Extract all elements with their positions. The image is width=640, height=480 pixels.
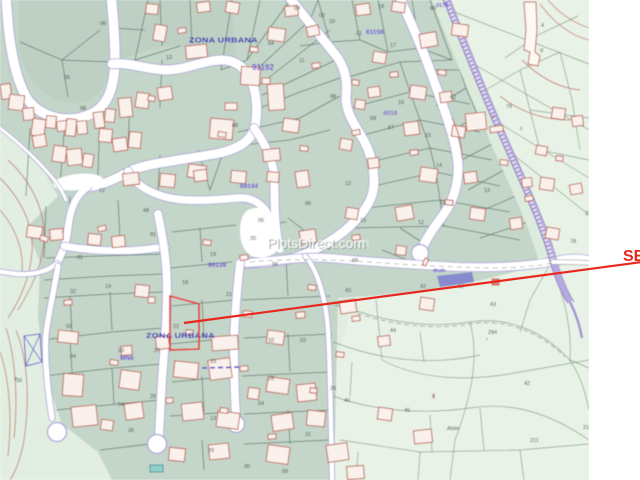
svg-text:27: 27: [154, 348, 160, 354]
svg-text:48: 48: [143, 208, 149, 214]
svg-text:19: 19: [210, 252, 216, 258]
svg-text:54: 54: [118, 402, 124, 408]
svg-text:29: 29: [330, 386, 336, 392]
svg-text:91192: 91192: [252, 63, 274, 72]
svg-text:54: 54: [258, 401, 264, 407]
svg-text:0178: 0178: [436, 3, 448, 9]
svg-text:67: 67: [388, 125, 394, 131]
svg-text:06: 06: [305, 201, 311, 207]
svg-text:18: 18: [378, 4, 384, 10]
svg-text:05: 05: [64, 75, 70, 81]
svg-text:ZONA URBANA: ZONA URBANA: [146, 332, 215, 340]
svg-text:drum: drum: [433, 268, 446, 274]
svg-text:61156: 61156: [366, 29, 384, 36]
svg-text:12: 12: [99, 188, 105, 194]
svg-text:99139: 99139: [208, 262, 226, 269]
svg-text:4: 4: [432, 395, 435, 401]
svg-text:42: 42: [524, 381, 530, 387]
svg-text:03: 03: [294, 6, 300, 12]
svg-text:08: 08: [232, 123, 238, 129]
svg-text:15: 15: [425, 133, 431, 139]
svg-text:30: 30: [244, 464, 250, 470]
svg-text:06: 06: [100, 21, 106, 27]
svg-text:44: 44: [390, 328, 396, 334]
svg-text:23: 23: [118, 348, 124, 354]
svg-text:18: 18: [182, 280, 188, 286]
svg-text:91: 91: [150, 232, 156, 238]
svg-text:08: 08: [330, 94, 336, 100]
svg-text:28: 28: [268, 376, 274, 382]
svg-text:Abier: Abier: [447, 426, 460, 432]
svg-text:21: 21: [226, 292, 232, 298]
svg-text:01: 01: [77, 255, 83, 261]
svg-text:13: 13: [484, 188, 490, 194]
svg-text:43: 43: [490, 302, 496, 308]
svg-text:13: 13: [166, 55, 172, 61]
svg-text:05: 05: [258, 218, 264, 224]
svg-text:02: 02: [300, 338, 306, 344]
svg-text:PlotsDirect.com: PlotsDirect.com: [267, 235, 365, 251]
svg-text:02: 02: [319, 13, 325, 19]
svg-text:11: 11: [299, 58, 305, 64]
svg-text:12: 12: [345, 181, 351, 187]
svg-text:10: 10: [329, 19, 335, 25]
svg-text:06: 06: [272, 262, 278, 268]
svg-text:12: 12: [418, 220, 424, 226]
svg-text:14: 14: [105, 284, 111, 290]
svg-text:04: 04: [70, 354, 76, 360]
svg-text:32: 32: [268, 338, 274, 344]
svg-text:17: 17: [390, 43, 396, 49]
svg-text:09: 09: [370, 116, 376, 122]
svg-text:98: 98: [80, 106, 86, 112]
svg-text:15: 15: [360, 218, 366, 224]
svg-text:33: 33: [210, 359, 216, 365]
svg-text:26: 26: [150, 394, 156, 400]
svg-text:294: 294: [488, 330, 497, 336]
svg-text:26: 26: [128, 428, 134, 434]
svg-text:40: 40: [344, 398, 350, 404]
svg-text:14: 14: [436, 163, 442, 169]
svg-text:04: 04: [268, 41, 274, 47]
svg-text:31: 31: [305, 432, 311, 438]
svg-text:13: 13: [210, 416, 216, 422]
svg-text:79: 79: [506, 104, 512, 110]
svg-text:01: 01: [356, 31, 362, 37]
svg-text:20: 20: [250, 236, 256, 242]
svg-text:43: 43: [345, 288, 351, 294]
svg-text:78: 78: [570, 239, 576, 245]
svg-text:68: 68: [352, 258, 358, 264]
svg-text:d: d: [540, 48, 543, 54]
svg-text:rn: rn: [358, 236, 369, 250]
svg-text:*: *: [486, 338, 488, 344]
svg-text:211: 211: [530, 438, 539, 444]
svg-text:68144: 68144: [240, 183, 258, 190]
svg-text:y.: y.: [14, 376, 18, 382]
svg-text:4016: 4016: [383, 110, 398, 117]
svg-text:29: 29: [208, 448, 214, 454]
svg-text:42: 42: [420, 284, 426, 290]
svg-text:ZONA URBANA: ZONA URBANA: [189, 36, 258, 44]
svg-text:c: c: [520, 126, 523, 132]
svg-text:SE: SE: [623, 248, 640, 265]
svg-text:22: 22: [173, 324, 179, 330]
svg-text:09: 09: [282, 469, 288, 475]
svg-text:21: 21: [583, 425, 589, 431]
svg-text:62: 62: [450, 95, 456, 101]
svg-text:16: 16: [398, 100, 404, 106]
svg-text:4: 4: [541, 23, 544, 29]
svg-text:32: 32: [70, 289, 76, 295]
svg-text:03: 03: [66, 324, 72, 330]
svg-text:MN6: MN6: [120, 355, 134, 362]
svg-text:11: 11: [440, 200, 446, 206]
svg-text:45: 45: [404, 408, 410, 414]
